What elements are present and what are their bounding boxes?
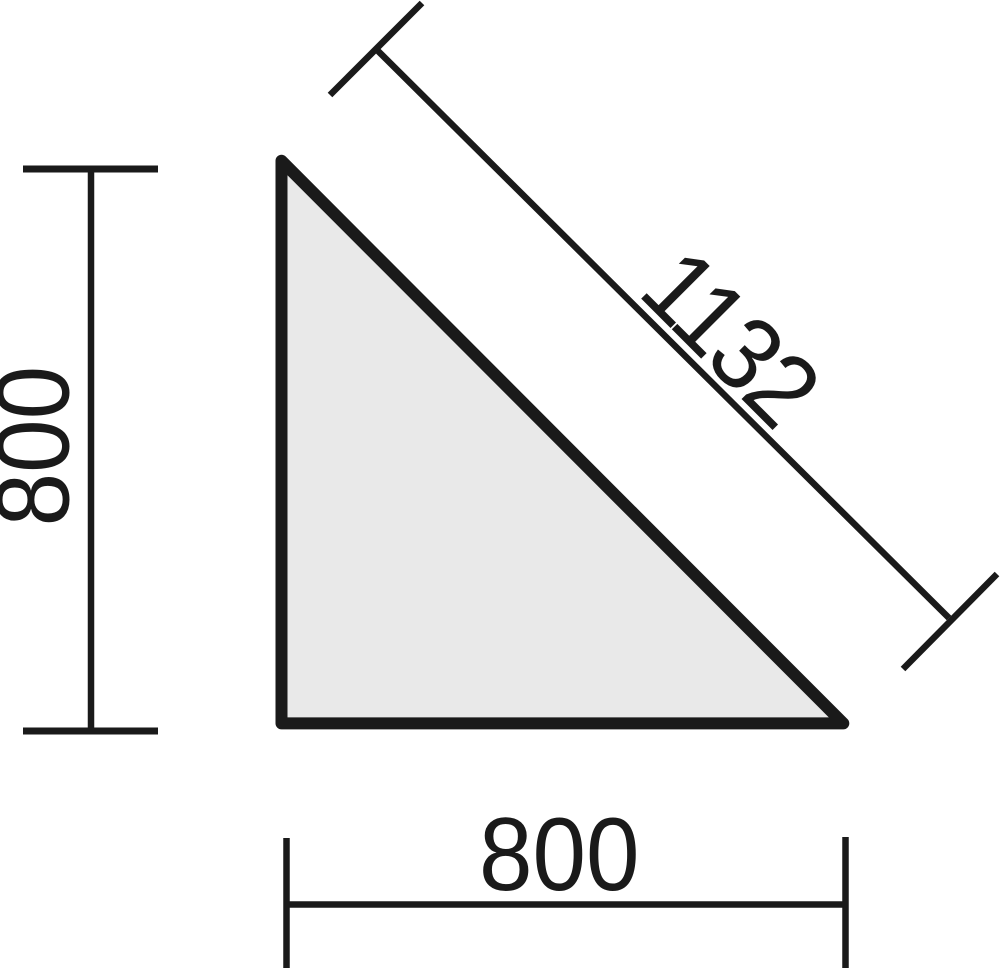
svg-text:800: 800	[479, 796, 639, 912]
svg-text:1132: 1132	[620, 227, 842, 449]
svg-text:800: 800	[0, 366, 91, 526]
